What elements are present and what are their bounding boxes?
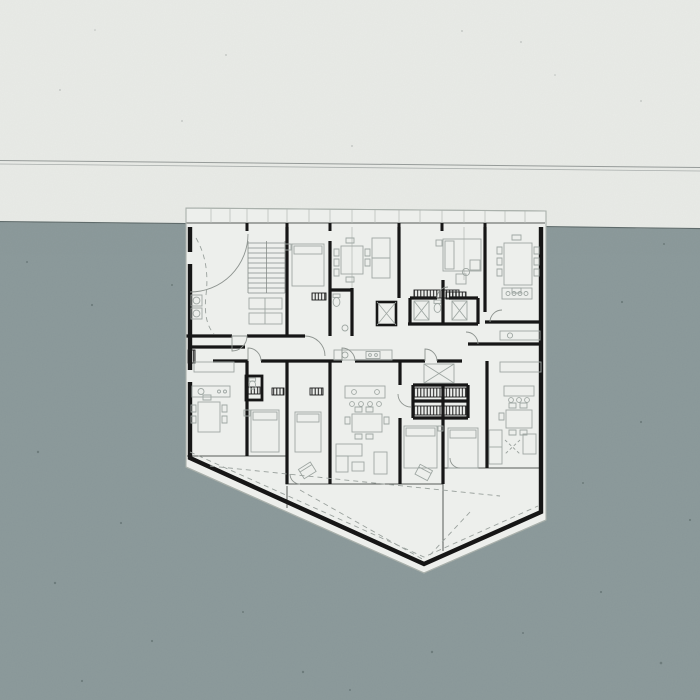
window-slit <box>187 252 192 264</box>
floor-plan-scene <box>0 0 700 700</box>
closet-comb <box>414 406 466 415</box>
radiator-comb <box>272 388 284 395</box>
window-slit <box>187 370 192 382</box>
radiator-comb <box>188 350 195 363</box>
closet-comb <box>414 388 466 397</box>
closet-comb <box>446 292 466 299</box>
radiator-comb <box>310 388 323 395</box>
radiator-comb <box>312 293 326 300</box>
presentation-board <box>0 0 700 700</box>
